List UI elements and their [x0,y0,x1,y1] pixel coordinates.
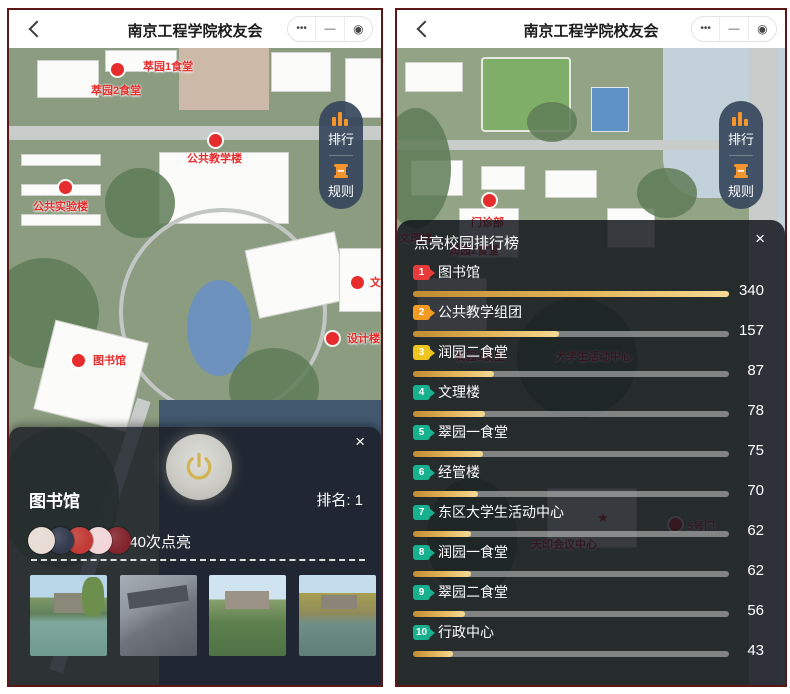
leaderboard-bar-track [413,371,729,377]
leaderboard-item-name: 经管楼 [438,464,480,481]
rank-menu-button[interactable]: 排行 [328,111,354,148]
rank-menu-label: 排行 [728,129,754,148]
building-name: 图书馆 [29,487,80,512]
rank-badge: 3 [413,345,430,360]
photo-thumbnail[interactable] [30,575,107,656]
map-green [637,168,697,218]
rules-menu-button[interactable]: 规则 [728,163,754,200]
leaderboard-value: 340 [739,282,764,299]
rank-number: 2 [419,307,425,318]
photo-strip [30,575,381,656]
minimize-icon[interactable]: — [719,17,747,41]
rules-menu-label: 规则 [328,181,354,200]
building-rank: 排名: 1 [316,489,363,510]
app-header: 南京工程学院校友会 ••• — ◉ [9,10,381,48]
rank-badge: 6 [413,465,430,480]
leaderboard-bar-track [413,411,729,417]
light-up-power-button[interactable] [166,434,232,500]
map-building [21,214,101,226]
dashed-divider [31,559,365,561]
leaderboard-item-name: 翠园二食堂 [438,584,508,601]
menu-divider [329,155,353,156]
leaderboard-item[interactable]: 7 东区大学生活动中心 62 [397,504,785,544]
rank-number: 8 [419,547,425,558]
map-road [397,140,749,150]
rank-badge: 4 [413,385,430,400]
leaderboard-bar-track [413,531,729,537]
leaderboard-bar-fill [413,611,465,617]
map-building [481,166,525,190]
leaderboard-bar-fill [413,291,729,297]
map-green [527,102,577,142]
leaderboard-item[interactable]: 5 翠园一食堂 75 [397,424,785,464]
leaderboard-value: 62 [747,522,764,539]
rank-number: 3 [419,347,425,358]
close-circle-icon[interactable]: ◉ [344,17,372,41]
leaderboard-bar-track [413,611,729,617]
rank-badge-tail [430,349,435,357]
leaderboard-overlay: 点亮校园排行榜 × 1 图书馆 340 2 公共教学组团 157 3 润园二食堂 [397,220,785,685]
rank-badge-tail [430,509,435,517]
side-menu: 排行 规则 [319,101,363,209]
leaderboard-item-name: 公共教学组团 [438,304,522,321]
leaderboard-item-name: 图书馆 [438,264,480,281]
leaderboard-bar-fill [413,411,485,417]
more-icon[interactable]: ••• [288,17,315,41]
rank-badge-tail [430,589,435,597]
rank-menu-label: 排行 [328,129,354,148]
leaderboard-bar-fill [413,531,471,537]
photo-thumbnail[interactable] [209,575,286,656]
leaderboard-title: 点亮校园排行榜 [414,232,519,253]
photo-thumbnail[interactable] [299,575,376,656]
rank-number: 4 [419,387,425,398]
map-label[interactable]: 公共实验楼 [33,198,88,214]
rank-number: 9 [419,587,425,598]
map-building [405,62,463,92]
map-marker-dot[interactable] [326,332,339,345]
leaderboard-value: 75 [747,442,764,459]
leaderboard-value: 78 [747,402,764,419]
menu-divider [729,155,753,156]
close-icon[interactable]: × [755,229,765,249]
avatar [28,527,55,554]
map-green [397,108,451,228]
leaderboard-bar-track [413,291,729,297]
leaderboard-value: 43 [747,642,764,659]
more-icon[interactable]: ••• [692,17,719,41]
scroll-icon [331,163,351,179]
rank-badge-tail [430,389,435,397]
rank-badge-tail [430,469,435,477]
leaderboard-item-name: 翠园一食堂 [438,424,508,441]
map-label[interactable]: 文理 [370,274,381,290]
rank-badge: 1 [413,265,430,280]
rank-badge: 8 [413,545,430,560]
leaderboard-item[interactable]: 8 润园一食堂 62 [397,544,785,584]
leaderboard-bar-fill [413,371,494,377]
map-marker-dot[interactable] [209,134,222,147]
rank-badge-tail [430,429,435,437]
miniprogram-capsule: ••• — ◉ [691,16,777,42]
close-circle-icon[interactable]: ◉ [748,17,776,41]
leaderboard-item-name: 东区大学生活动中心 [438,504,564,521]
leaderboard-bar-track [413,331,729,337]
map-building [271,52,331,92]
leaderboard-item[interactable]: 2 公共教学组团 157 [397,304,785,344]
leaderboard-bar-fill [413,491,478,497]
rank-badge-tail [430,629,435,637]
light-count-text: 340次点亮 [121,531,191,552]
leaderboard-bar-track [413,571,729,577]
rank-number: 5 [419,427,425,438]
leaderboard-bar-fill [413,571,471,577]
map-building [545,170,597,198]
photo-thumbnail[interactable] [120,575,197,656]
rank-badge: 10 [413,625,430,640]
close-icon[interactable]: × [355,433,365,450]
rank-number: 7 [419,507,425,518]
leaderboard-item-name: 润园一食堂 [438,544,508,561]
map-marker-dot[interactable] [111,63,124,76]
app-header: 南京工程学院校友会 ••• — ◉ [397,10,785,48]
miniprogram-capsule: ••• — ◉ [287,16,373,42]
side-menu: 排行 规则 [719,101,763,209]
left-phone-screen: 萃园1食堂 萃园2食堂 公共教学楼 公共实验楼 图书馆 设计楼 文理 排行 [7,8,383,687]
rank-badge: 2 [413,305,430,320]
leaderboard-item-name: 文理楼 [438,384,480,401]
leaderboard-value: 70 [747,482,764,499]
power-icon [182,450,216,484]
map-building [37,60,99,98]
leaderboard-item[interactable]: 1 图书馆 340 [397,264,785,304]
leaderboard-item[interactable]: 9 翠园二食堂 56 [397,584,785,624]
leaderboard-bar-track [413,491,729,497]
minimize-icon[interactable]: — [315,17,343,41]
leaderboard-item[interactable]: 10 行政中心 43 [397,624,785,664]
map-label[interactable]: 图书馆 [93,352,126,368]
leaderboard-value: 56 [747,602,764,619]
rank-badge-tail [430,549,435,557]
rank-badge-tail [430,309,435,317]
leaderboard-item[interactable]: 6 经管楼 70 [397,464,785,504]
map-marker-dot[interactable] [72,354,85,367]
leaderboard-item-name: 润园二食堂 [438,344,508,361]
leaderboard-bar-track [413,651,729,657]
map-marker-dot[interactable] [351,276,364,289]
map-label[interactable]: 公共教学楼 [187,150,242,166]
bar-chart-icon [731,111,751,127]
map-label[interactable]: 萃园1食堂 [143,58,193,74]
rules-menu-button[interactable]: 规则 [328,163,354,200]
leaderboard-item[interactable]: 3 润园二食堂 87 [397,344,785,384]
rank-menu-button[interactable]: 排行 [728,111,754,148]
rank-badge: 7 [413,505,430,520]
map-label[interactable]: 萃园2食堂 [91,82,141,98]
leaderboard-item[interactable]: 4 文理楼 78 [397,384,785,424]
leaderboard-bar-fill [413,331,559,337]
rank-badge: 5 [413,425,430,440]
leaderboard-item-name: 行政中心 [438,624,494,641]
rank-badge-tail [430,269,435,277]
leaderboard-value: 62 [747,562,764,579]
scroll-icon [731,163,751,179]
rules-menu-label: 规则 [728,181,754,200]
rank-number: 6 [419,467,425,478]
leaderboard-bar-fill [413,651,453,657]
bar-chart-icon [331,111,351,127]
map-marker-dot[interactable] [483,194,496,207]
leaderboard-bar-track [413,451,729,457]
leaderboard-value: 157 [739,322,764,339]
rank-number: 10 [416,627,427,638]
building-detail-sheet: × 图书馆 排名: 1 340次点亮 [9,427,381,685]
map-marker-dot[interactable] [59,181,72,194]
map-pool [591,87,629,132]
right-phone-screen: 门诊部 润园2食堂 文理楼 润园1食堂 大学生活动中心 天印会议中心 5号门 ★… [395,8,787,687]
leaderboard-list: 1 图书馆 340 2 公共教学组团 157 3 润园二食堂 87 4 [397,264,785,664]
rank-badge: 9 [413,585,430,600]
leaderboard-value: 87 [747,362,764,379]
map-label[interactable]: 设计楼 [347,330,380,346]
map-building [21,154,101,166]
leaderboard-bar-fill [413,451,483,457]
rank-number: 1 [419,267,425,278]
